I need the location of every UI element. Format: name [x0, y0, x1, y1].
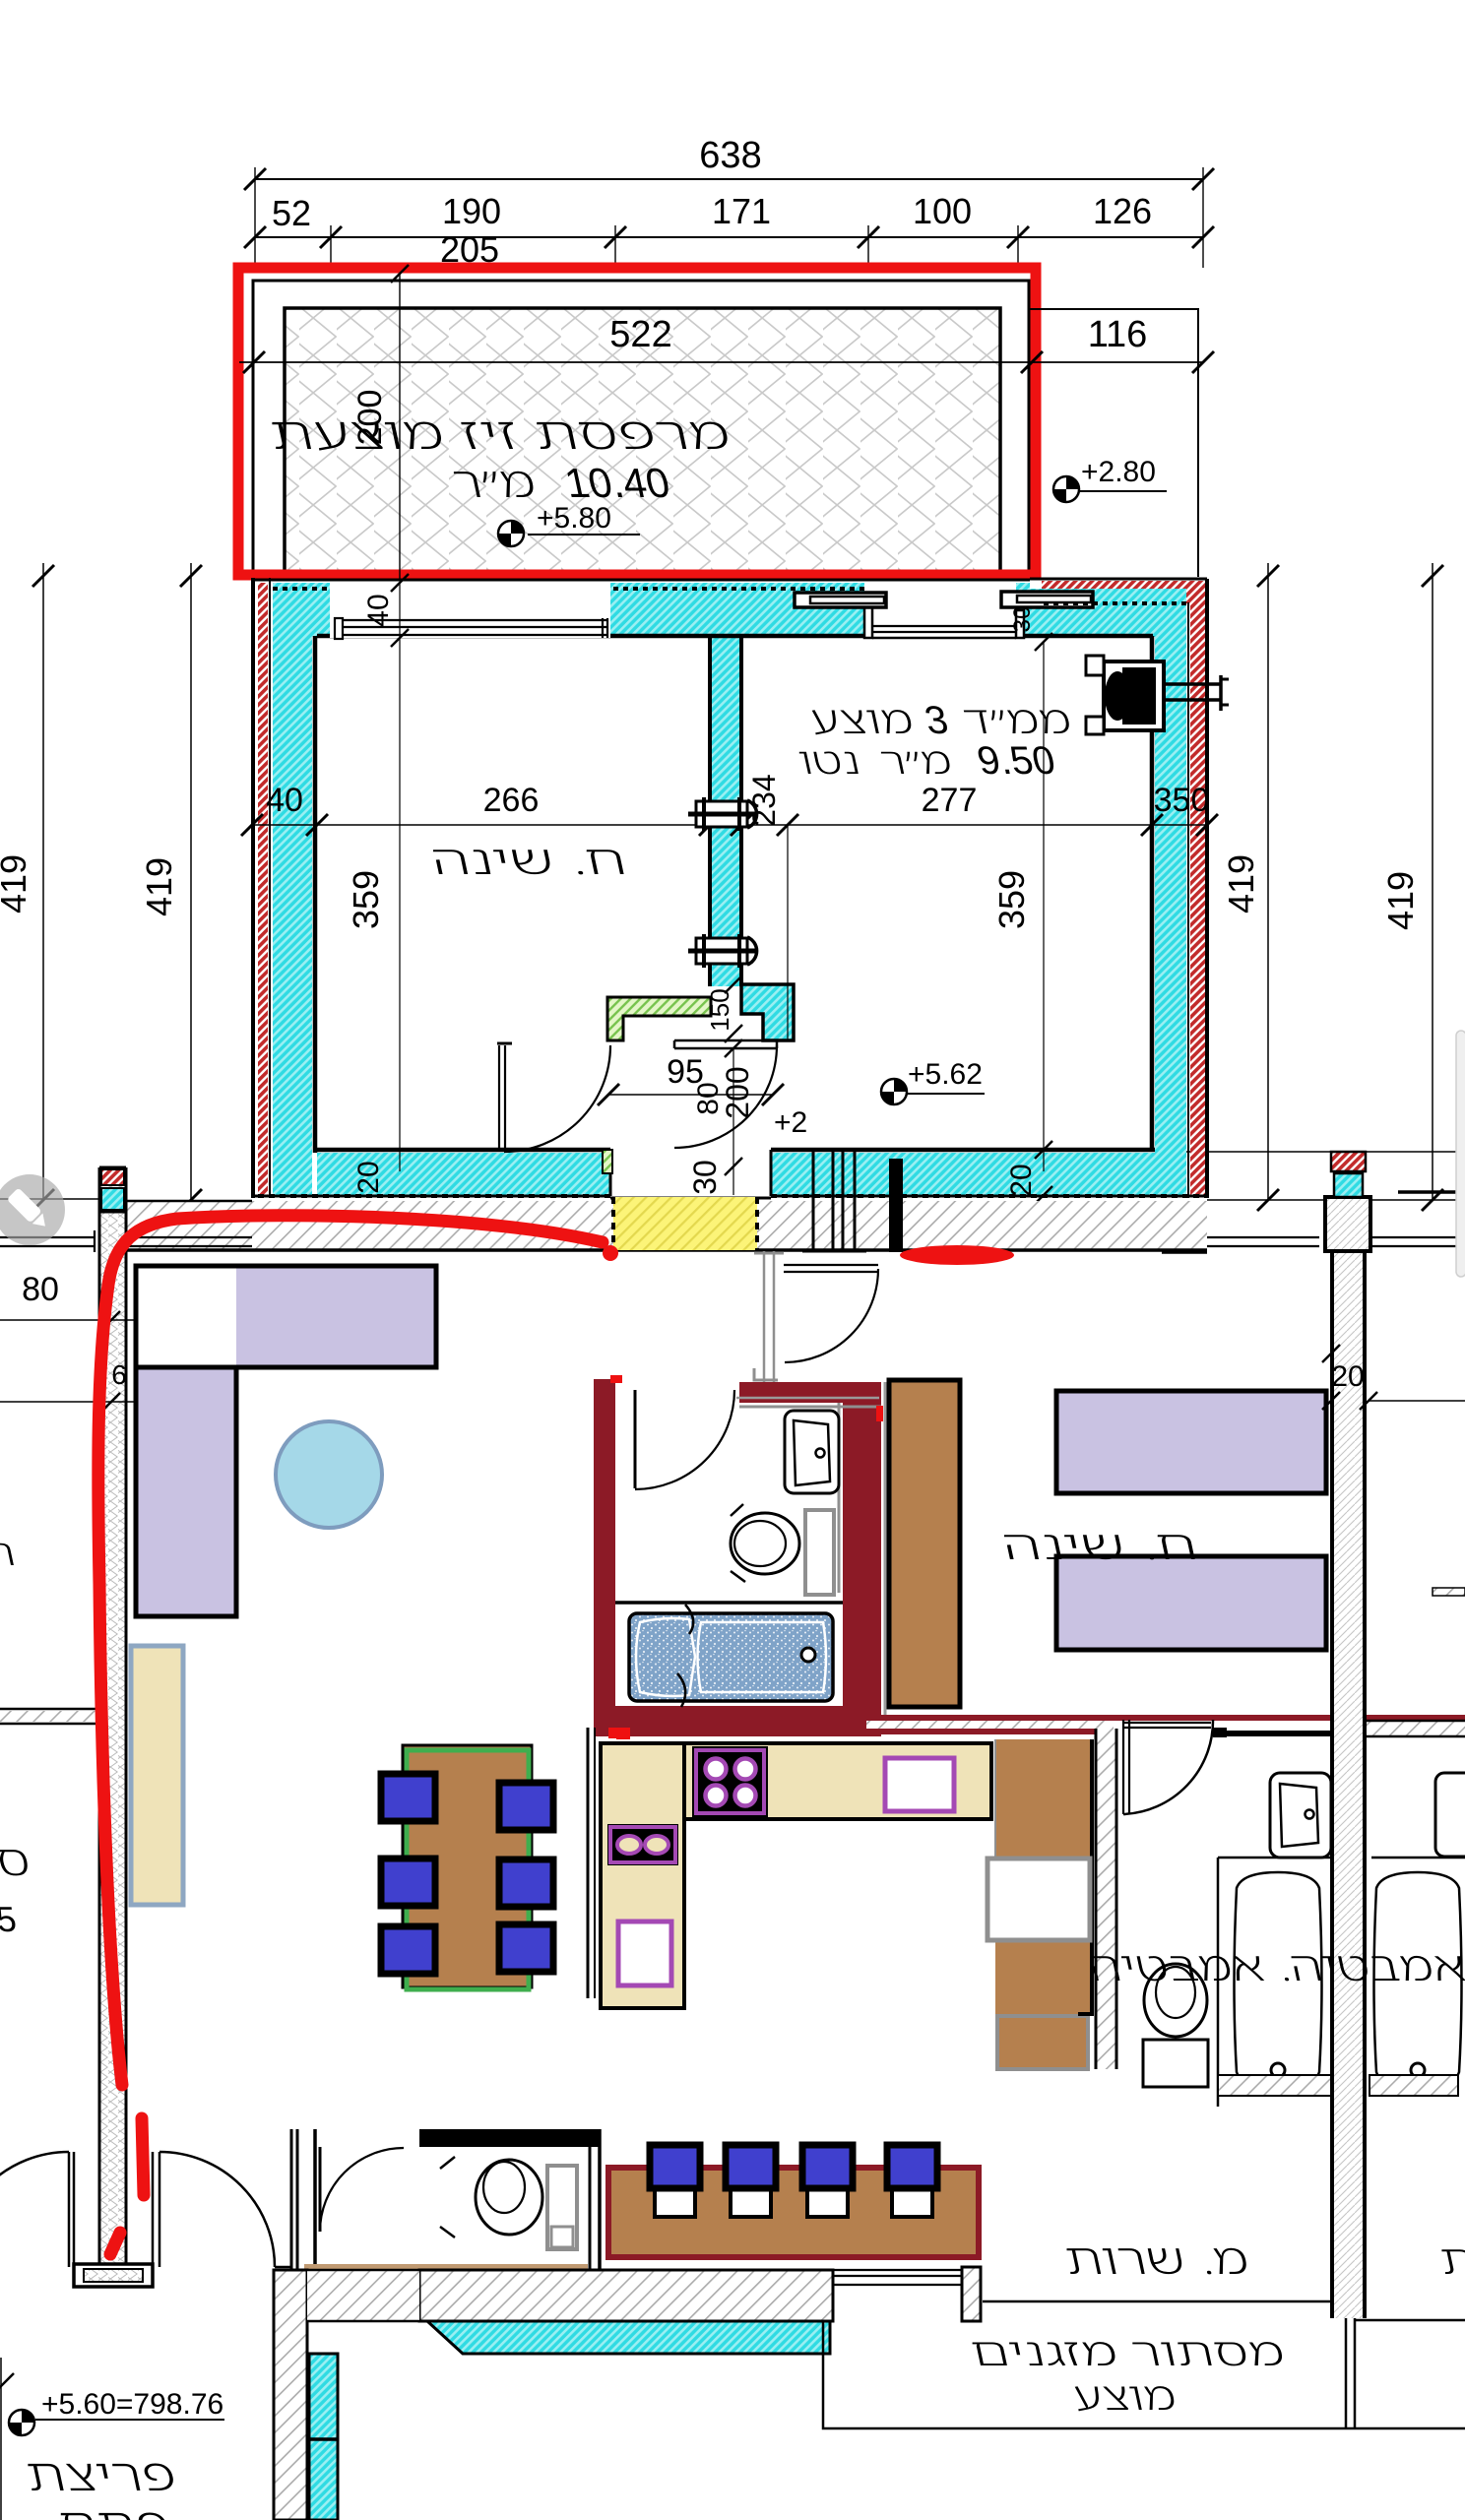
svg-text:6: 6	[111, 1359, 127, 1390]
svg-text:20: 20	[352, 1161, 385, 1193]
svg-text:350: 350	[1154, 782, 1210, 819]
svg-text:419: 419	[1380, 871, 1421, 930]
svg-text:+2: +2	[774, 1106, 807, 1139]
svg-text:40: 40	[362, 594, 395, 626]
svg-text:52: 52	[272, 193, 311, 233]
svg-text:190: 190	[442, 191, 501, 231]
svg-text:10.40: 10.40	[561, 460, 674, 505]
svg-text:100: 100	[913, 191, 972, 231]
svg-text:+5.80: +5.80	[537, 502, 611, 535]
svg-text:638: 638	[699, 135, 761, 176]
svg-text:+2.80: +2.80	[1081, 456, 1156, 488]
svg-text:171: 171	[712, 191, 771, 231]
svg-text:+5.60=798.76: +5.60=798.76	[41, 2388, 223, 2421]
svg-text:234: 234	[746, 774, 782, 826]
svg-text:80: 80	[22, 1271, 59, 1308]
svg-text:20: 20	[1005, 1164, 1038, 1196]
svg-text:30: 30	[1009, 606, 1036, 633]
svg-text:522: 522	[609, 314, 671, 355]
svg-text:30: 30	[687, 1160, 723, 1195]
svg-text:419: 419	[139, 857, 179, 916]
svg-text:359: 359	[346, 870, 386, 929]
svg-text:277: 277	[922, 782, 978, 819]
svg-text:+5.62: +5.62	[908, 1058, 983, 1091]
svg-text:359: 359	[991, 870, 1032, 929]
svg-text:40: 40	[266, 782, 303, 819]
svg-text:20: 20	[1331, 1360, 1364, 1393]
svg-text:200: 200	[720, 1066, 755, 1118]
svg-text:116: 116	[1088, 314, 1148, 355]
svg-text:150: 150	[705, 988, 734, 1031]
svg-text:126: 126	[1093, 191, 1152, 231]
svg-text:419: 419	[1221, 854, 1261, 913]
svg-text:419: 419	[0, 854, 33, 913]
svg-text:9.50: 9.50	[973, 737, 1058, 782]
svg-text:266: 266	[483, 782, 540, 819]
